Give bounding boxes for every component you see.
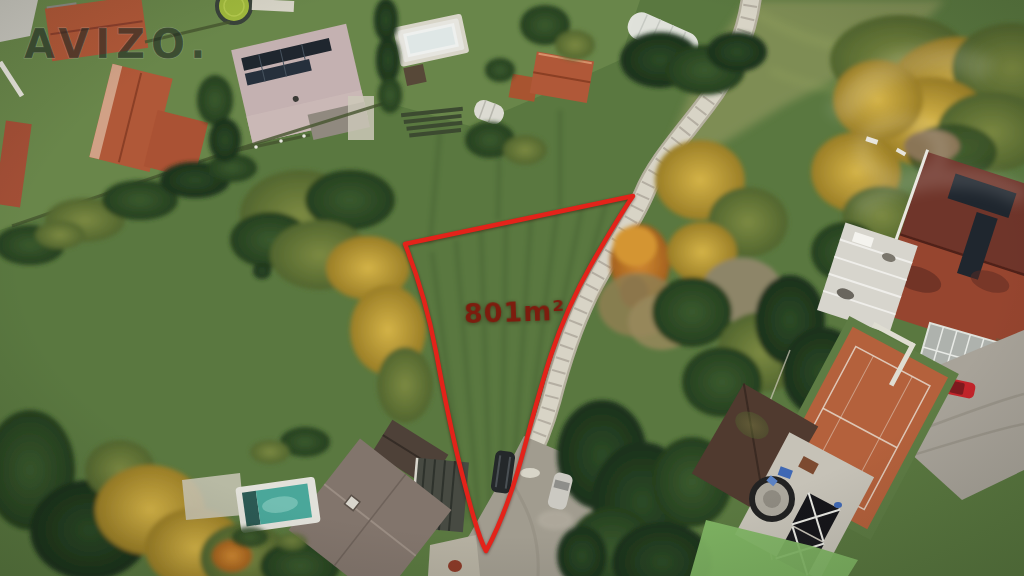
area-label: 801m² [463,295,565,330]
brand-watermark: AVIZO. [24,21,211,67]
aerial-scene: 801m² AVIZO. [0,0,1024,576]
aerial-photo: 801m² AVIZO. [0,0,1024,576]
